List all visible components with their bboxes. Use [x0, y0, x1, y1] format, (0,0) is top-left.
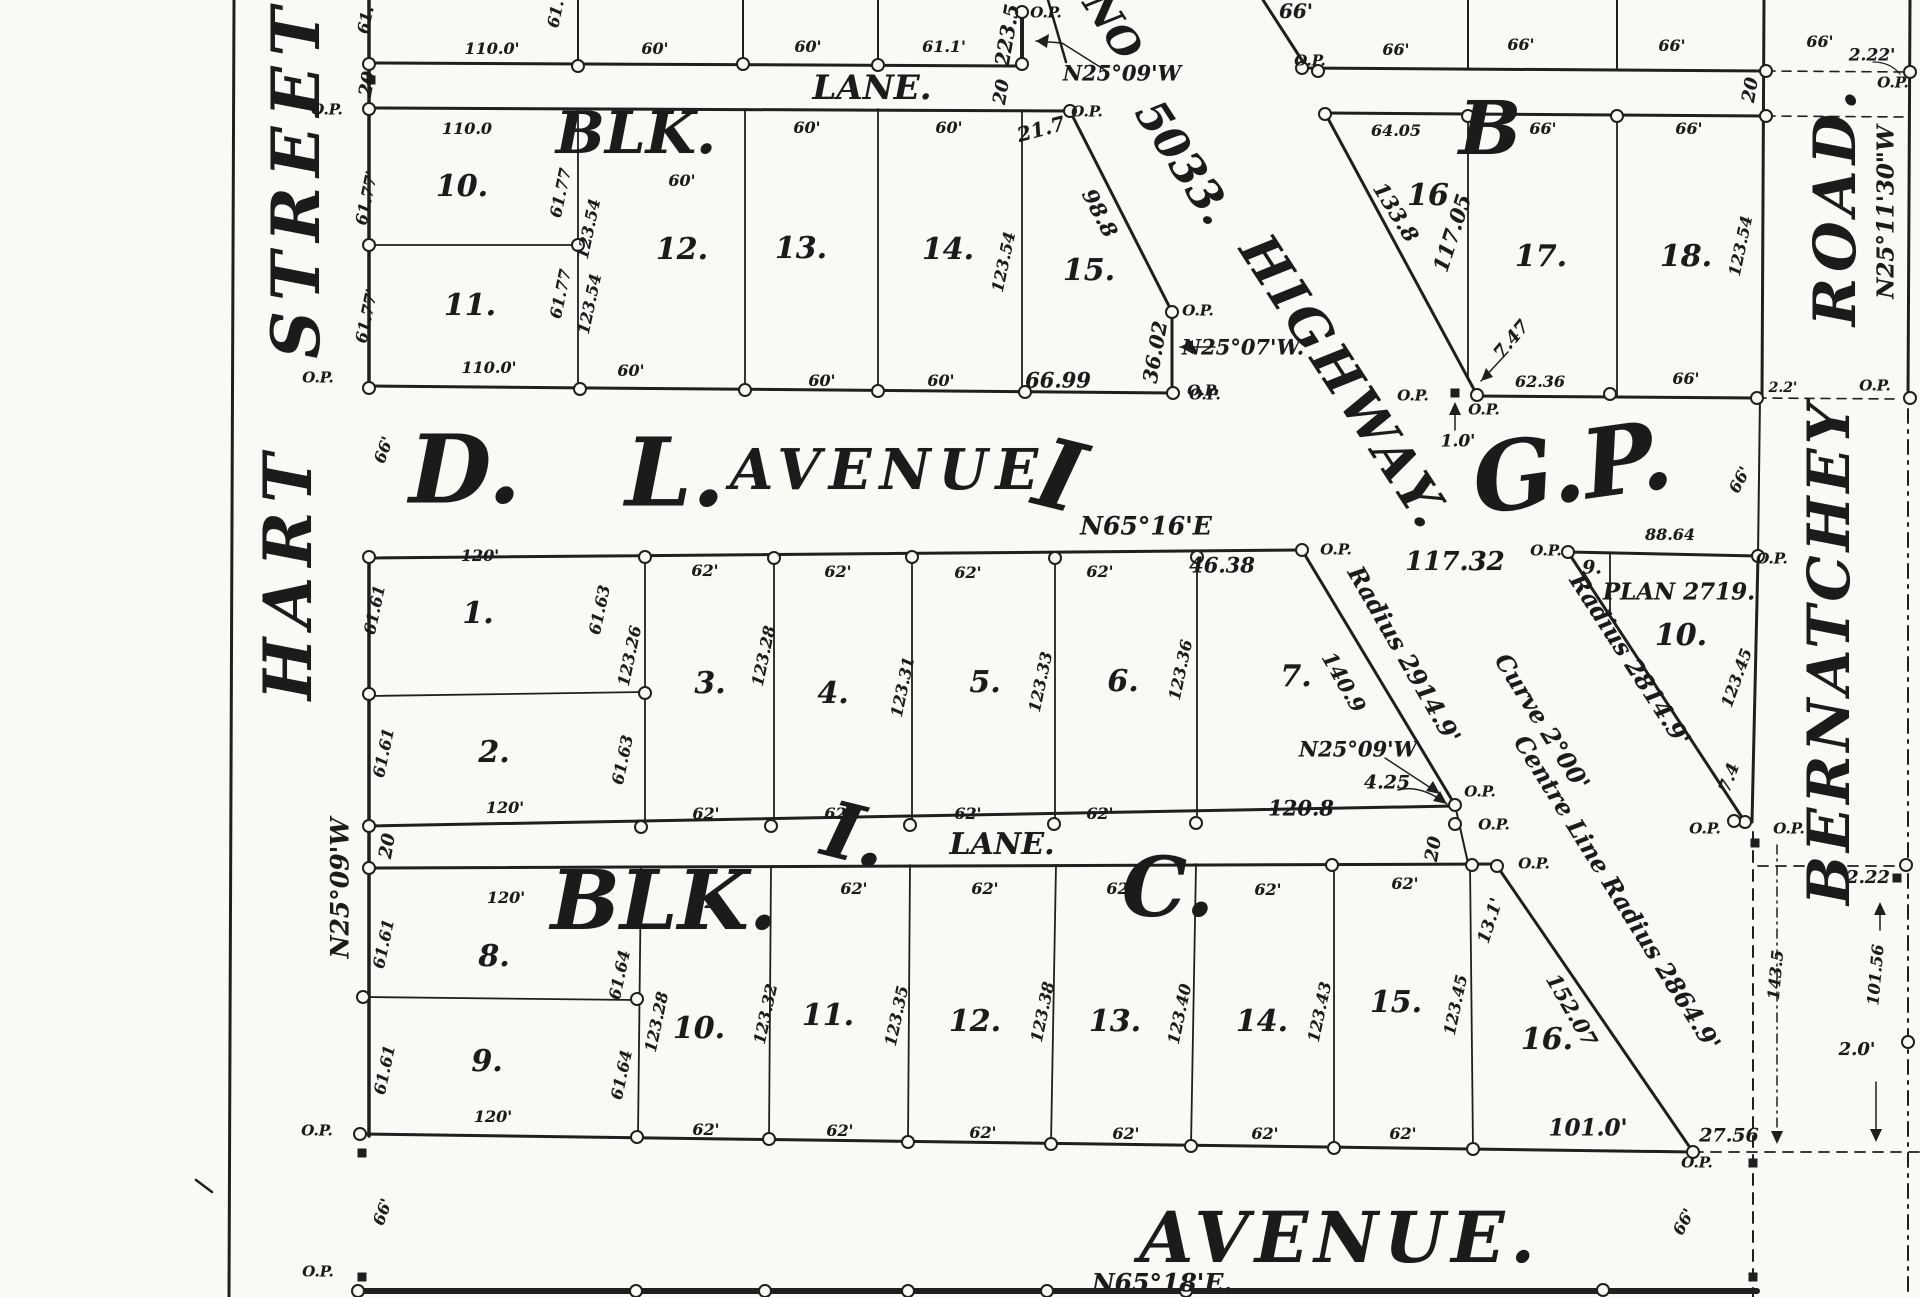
monument-circle	[1604, 388, 1616, 400]
dimension-label: 66'	[1675, 121, 1702, 137]
monument-circle	[1185, 1140, 1197, 1152]
avenue-name-l: L.	[625, 426, 725, 521]
monument-circle	[902, 1136, 914, 1148]
dimension-label: 62'	[1254, 882, 1281, 898]
dimension-label: 20	[357, 70, 379, 98]
monument-circle	[1467, 1143, 1479, 1155]
lot-number: 5.	[969, 668, 1000, 698]
bearing-hart-street: N25°09'W	[328, 818, 353, 959]
monument-circle	[768, 552, 780, 564]
dimension-label: 62'	[1112, 1126, 1139, 1142]
op-marker: O.P.	[1294, 54, 1325, 69]
op-marker: O.P.	[1773, 822, 1804, 837]
monument-circle	[759, 1285, 771, 1297]
monument-circle	[574, 383, 586, 395]
avenue-name-d: D.	[409, 423, 521, 518]
dimension-label: 66.99	[1025, 370, 1091, 391]
dimension-label: 20	[991, 78, 1013, 106]
lane-label-mid: LANE.	[949, 830, 1054, 860]
monument-circle	[630, 1285, 642, 1297]
avenue-name-bottom: AVENUE.	[1139, 1203, 1541, 1273]
dimension-label: 66'	[1279, 1, 1313, 21]
dimension-label: 66'	[1529, 121, 1556, 137]
monument-circle	[1611, 110, 1623, 122]
monument-circle	[363, 862, 375, 874]
lot-number: 2.	[478, 738, 509, 768]
dimension-label: 62'	[1106, 881, 1133, 897]
monument-circle	[1900, 859, 1912, 871]
bearing-lane: N25°09'W	[1299, 739, 1417, 760]
op-marker: O.P.	[1468, 403, 1499, 418]
dimension-label: 62'	[1251, 1126, 1278, 1142]
lane-b-north	[1302, 68, 1766, 71]
op-marker: O.P.	[1530, 544, 1561, 559]
monument-square	[1749, 1159, 1758, 1168]
monument-circle	[1319, 108, 1331, 120]
monument-circle	[1562, 546, 1574, 558]
hart-street-west-line	[229, 0, 234, 1297]
dimension-label: 120'	[487, 890, 525, 906]
lane-b-south	[1325, 113, 1766, 116]
monument-circle	[1751, 392, 1763, 404]
avenue-name: AVENUE	[730, 442, 1046, 498]
dimension-label: 60'	[808, 373, 835, 389]
dimension-label: 2.22	[1846, 869, 1890, 887]
dimension-label: 62'	[1391, 876, 1418, 892]
dimension-label: 2.0'	[1839, 1041, 1876, 1059]
street-name-street: STREET	[263, 0, 329, 359]
monument-circle	[1904, 392, 1916, 404]
monument-circle	[872, 385, 884, 397]
dimension-label: 62'	[1389, 1126, 1416, 1142]
dimension-label: 64.05	[1371, 123, 1421, 139]
lot-number: 1.	[462, 599, 493, 629]
op-marker: O.P.	[1320, 543, 1351, 558]
dimension-label: 61.1'	[922, 39, 966, 55]
monument-circle	[363, 103, 375, 115]
monument-square	[1893, 874, 1902, 883]
lot-number: 7.	[1280, 662, 1311, 692]
lot-number: 11.	[444, 291, 496, 321]
dimension-label: 110.0'	[462, 360, 517, 376]
monument-circle	[1167, 387, 1179, 399]
op-marker: O.P.	[1071, 105, 1102, 120]
monument-circle	[906, 551, 918, 563]
block-label-top: BLK.	[556, 104, 716, 162]
dimension-label: 143.5	[1766, 949, 1786, 1000]
dimension-label: 4.25	[1364, 774, 1410, 793]
lot-number: 13.	[775, 234, 827, 264]
monument-circle	[363, 820, 375, 832]
block-b-south-line	[1477, 396, 1757, 398]
dimension-label: 62'	[954, 806, 981, 822]
monument-circle	[763, 1133, 775, 1145]
initials-gp: G.P.	[1467, 407, 1678, 529]
monument-square	[1451, 389, 1460, 398]
op-marker: O.P.	[1689, 822, 1720, 837]
op-marker: O.P.	[1518, 857, 1549, 872]
plan-number: PLAN 2719.	[1603, 581, 1755, 604]
dimension-label: 101.0'	[1548, 1117, 1627, 1140]
monument-circle	[363, 551, 375, 563]
op-marker: O.P.	[1030, 6, 1061, 21]
lower-block-south-line	[360, 1134, 1693, 1152]
lot-number: 10.	[673, 1014, 725, 1044]
op-marker: O.P.	[1397, 389, 1428, 404]
dimension-label: 62'	[840, 881, 867, 897]
dimension-label: 62'	[692, 806, 719, 822]
lane-top-north	[369, 63, 1022, 66]
bearing-avenue-bottom: N65°18'E.	[1092, 1271, 1232, 1296]
monument-circle	[1326, 859, 1338, 871]
monument-circle	[639, 687, 651, 699]
highway-sw-edge-lower	[1497, 866, 1693, 1152]
dimension-label: 62.36	[1515, 374, 1565, 390]
dimension-label: 110.0	[442, 121, 492, 137]
op-marker: O.P.	[302, 1265, 333, 1280]
dimension-label: 60'	[935, 120, 962, 136]
op-marker: O.P.	[1464, 785, 1495, 800]
dimension-label: 117.32	[1405, 549, 1505, 575]
dimension-label: 27.56	[1699, 1127, 1759, 1146]
lane-label-top: LANE.	[812, 71, 931, 105]
monument-circle	[1016, 58, 1028, 70]
dimension-label: 60'	[794, 39, 821, 55]
bearing-avenue-i: N65°16'E	[1080, 514, 1212, 539]
dimension-label: 20	[1423, 835, 1445, 863]
monument-circle	[1728, 815, 1740, 827]
dimension-label: 46.38	[1189, 555, 1255, 576]
dimension-label: 60'	[617, 363, 644, 379]
dimension-label: 20	[377, 832, 399, 860]
lot-number: 12.	[949, 1007, 1001, 1037]
monument-circle	[1449, 799, 1461, 811]
op-marker: O.P.	[1756, 552, 1787, 567]
op-marker: O.P.	[1681, 1156, 1712, 1171]
monument-circle	[739, 384, 751, 396]
dimension-label: 120'	[461, 548, 499, 564]
monument-circle	[765, 820, 777, 832]
lot-number: 9.	[471, 1047, 502, 1077]
lot-number: 10.	[436, 172, 488, 202]
lot-number: 11.	[802, 1001, 854, 1031]
dimension-label: 62'	[1086, 806, 1113, 822]
monument-circle	[635, 821, 647, 833]
dimension-label: 62'	[971, 881, 998, 897]
dimension-label: 60'	[927, 373, 954, 389]
bearing-leader: N25°09'W	[1063, 63, 1181, 84]
monument-circle	[1041, 1285, 1053, 1297]
monument-circle	[1466, 859, 1478, 871]
dimension-label: 60'	[668, 173, 695, 189]
op-marker: O.P.	[1478, 818, 1509, 833]
lot-number: 16.	[1521, 1025, 1573, 1055]
monument-circle	[572, 60, 584, 72]
monument-circle	[363, 382, 375, 394]
dimension-label: 2.22'	[1849, 48, 1896, 65]
lot-number: 18.	[1660, 242, 1712, 272]
monument-circle	[1328, 1142, 1340, 1154]
monument-circle	[1296, 544, 1308, 556]
dimension-label: 66'	[1507, 37, 1534, 53]
monument-square	[1749, 1273, 1758, 1282]
monument-circle	[363, 58, 375, 70]
dimension-label: 62'	[691, 563, 718, 579]
survey-plat-canvas: STREETHARTN25°09'WBLK.LANE.61.110.0'60'6…	[0, 0, 1920, 1297]
op-marker: O.P.	[1187, 384, 1218, 399]
block-letter-b: B	[1459, 92, 1522, 166]
road-east-edge	[1908, 0, 1910, 399]
lot-number: 13.	[1089, 1007, 1141, 1037]
monument-circle	[352, 1285, 364, 1297]
dimension-label: 62'	[826, 1123, 853, 1139]
monument-square	[358, 1149, 367, 1158]
lot-number: 12.	[656, 235, 708, 265]
lot-number: 15.	[1370, 988, 1422, 1018]
lot-number: 8.	[478, 942, 509, 972]
op-marker: O.P.	[302, 371, 333, 386]
dimension-label: 62'	[692, 1122, 719, 1138]
monument-circle	[1449, 818, 1461, 830]
lot-number: 14.	[922, 235, 974, 265]
monument-circle	[1760, 110, 1772, 122]
monument-circle	[737, 58, 749, 70]
monument-circle	[631, 1131, 643, 1143]
dimension-label: 120'	[486, 800, 524, 816]
dimension-label: 62'	[954, 565, 981, 581]
monument-circle	[363, 688, 375, 700]
dimension-label: 62'	[693, 895, 720, 911]
lot-number: 14.	[1236, 1007, 1288, 1037]
monument-circle	[1190, 817, 1202, 829]
block-letter-c: C.	[1122, 847, 1214, 929]
monument-square	[1751, 839, 1760, 848]
monument-square	[358, 1273, 367, 1282]
dimension-label: 62'	[969, 1125, 996, 1141]
road-name-bernatchey: BERNATCHEY	[1800, 399, 1858, 905]
monument-circle	[1045, 1138, 1057, 1150]
dimension-label: 62'	[824, 564, 851, 580]
dimension-label: 62'	[1086, 564, 1113, 580]
monument-circle	[1491, 860, 1503, 872]
op-marker: O.P.	[1859, 379, 1890, 394]
op-marker: O.P.	[1877, 76, 1908, 91]
lot-number: 3.	[694, 669, 725, 699]
lot-number: 17.	[1515, 242, 1567, 272]
monument-circle	[1471, 389, 1483, 401]
lot-number: 4.	[817, 679, 848, 709]
avenue-i-south-line	[369, 550, 1302, 558]
dimension-label: 120.8	[1268, 798, 1334, 819]
street-name-hart: HART	[255, 444, 321, 700]
lot-number: 10.	[1655, 621, 1707, 651]
dimension-label: 110.0'	[465, 41, 520, 57]
monument-circle	[639, 551, 651, 563]
monument-circle	[1597, 1284, 1609, 1296]
monument-circle	[1166, 306, 1178, 318]
bearing-bernatchey: N25°11'30"W	[1875, 125, 1898, 298]
monument-circle	[363, 239, 375, 251]
op-marker: O.P.	[311, 103, 342, 118]
dimension-label: 66'	[1658, 38, 1685, 54]
road-name-road: ROAD.	[1806, 84, 1864, 326]
monument-circle	[357, 991, 369, 1003]
lot-number: 15.	[1063, 256, 1115, 286]
monument-circle	[902, 1285, 914, 1297]
monument-circle	[631, 993, 643, 1005]
dimension-label: 120'	[474, 1109, 512, 1125]
dimension-label: 66'	[1672, 371, 1699, 387]
dimension-label: 66'	[1806, 34, 1833, 50]
dimension-label: 88.64	[1645, 527, 1695, 543]
lot-number: 16	[1407, 181, 1449, 211]
block-label-mid: BLK.	[551, 860, 778, 942]
monument-circle	[1049, 552, 1061, 564]
dimension-label: 2.2'	[1769, 381, 1798, 395]
dimension-label: 60'	[641, 41, 668, 57]
monument-circle	[1902, 1036, 1914, 1048]
monument-circle	[904, 819, 916, 831]
monument-circle	[354, 1128, 366, 1140]
op-marker: O.P.	[1182, 304, 1213, 319]
op-marker: O.P.	[301, 1124, 332, 1139]
lane-top-south	[369, 108, 1068, 111]
dimension-label: 20	[1740, 76, 1762, 104]
dimension-label: 66'	[1382, 42, 1409, 58]
monument-circle	[1760, 65, 1772, 77]
lot-number: 6.	[1107, 667, 1138, 697]
dimension-label: 60'	[793, 120, 820, 136]
road-west-edge	[1762, 0, 1764, 398]
